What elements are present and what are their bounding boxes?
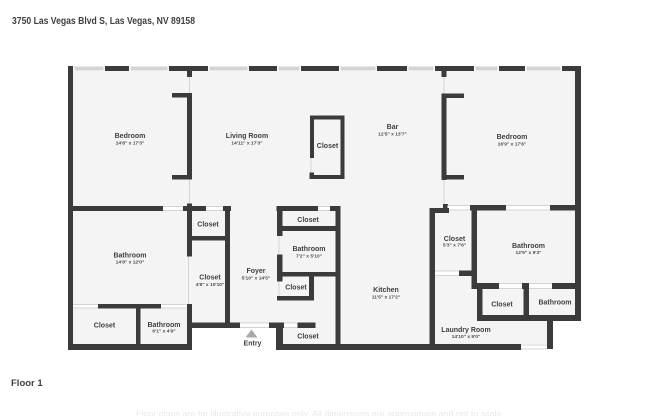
svg-text:6'1" x 4'9": 6'1" x 4'9": [152, 328, 175, 334]
svg-text:16'9" x 17'6": 16'9" x 17'6": [498, 142, 527, 148]
svg-text:Closet: Closet: [199, 275, 221, 282]
svg-text:Bathroom: Bathroom: [512, 243, 545, 250]
svg-text:11'5" x 17'2": 11'5" x 17'2": [372, 294, 400, 300]
svg-text:5'3" x 7'6": 5'3" x 7'6": [443, 243, 466, 249]
svg-text:14'8" x 17'3": 14'8" x 17'3": [116, 141, 145, 147]
svg-text:Bathroom: Bathroom: [538, 300, 571, 307]
svg-text:4'8" x 10'10": 4'8" x 10'10": [196, 282, 225, 288]
svg-text:14'11" x 17'3": 14'11" x 17'3": [231, 141, 262, 147]
svg-text:12'5" x 13'7": 12'5" x 13'7": [378, 132, 407, 138]
svg-text:Bedroom: Bedroom: [115, 133, 146, 140]
svg-text:Closet: Closet: [197, 222, 219, 229]
svg-text:Laundry Room: Laundry Room: [441, 327, 490, 334]
svg-text:Closet: Closet: [285, 285, 307, 292]
svg-text:Bathroom: Bathroom: [113, 252, 146, 259]
svg-text:Foyer: Foyer: [246, 268, 265, 275]
svg-text:5'10" x 14'5": 5'10" x 14'5": [242, 275, 271, 281]
svg-text:Closet: Closet: [297, 217, 319, 224]
svg-text:Bathroom: Bathroom: [292, 246, 325, 253]
svg-text:Bar: Bar: [387, 124, 399, 131]
svg-text:Closet: Closet: [297, 333, 319, 340]
svg-text:3750 Las Vegas Blvd S, Las Veg: 3750 Las Vegas Blvd S, Las Vegas, NV 891…: [12, 15, 195, 27]
svg-text:Closet: Closet: [491, 301, 513, 308]
svg-text:14'10" x 9'0": 14'10" x 9'0": [452, 334, 481, 340]
svg-text:Closet: Closet: [444, 236, 466, 243]
svg-text:Entry: Entry: [244, 340, 262, 347]
svg-text:Bedroom: Bedroom: [497, 134, 528, 141]
svg-text:14'8" x 12'0": 14'8" x 12'0": [116, 260, 145, 266]
svg-text:Closet: Closet: [94, 322, 116, 329]
svg-text:Floor plans are for illustrati: Floor plans are for illustrative purpose…: [136, 409, 504, 416]
svg-text:Closet: Closet: [317, 143, 339, 150]
svg-text:Floor 1: Floor 1: [11, 378, 43, 389]
svg-text:Kitchen: Kitchen: [373, 287, 399, 294]
svg-text:12'9" x 9'3": 12'9" x 9'3": [515, 250, 541, 256]
svg-text:7'2" x 5'10": 7'2" x 5'10": [296, 253, 322, 259]
svg-text:Living Room: Living Room: [226, 133, 268, 140]
svg-text:Bathroom: Bathroom: [147, 322, 180, 329]
